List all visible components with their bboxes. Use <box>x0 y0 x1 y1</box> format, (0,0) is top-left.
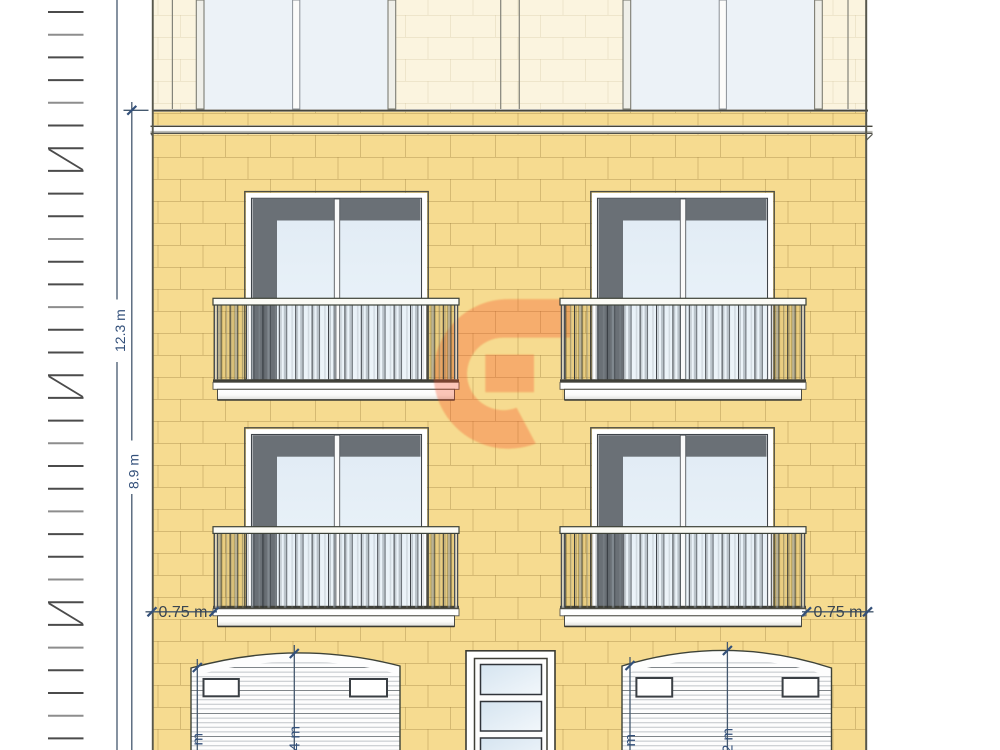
svg-text:2 m: 2 m <box>189 733 206 750</box>
svg-text:0.75 m: 0.75 m <box>814 604 863 621</box>
svg-text:2 m: 2 m <box>622 734 639 750</box>
svg-text:12.3 m: 12.3 m <box>112 309 128 352</box>
svg-text:2 m: 2 m <box>719 728 736 750</box>
svg-text:4 m: 4 m <box>286 726 303 750</box>
svg-text:8.9 m: 8.9 m <box>125 454 141 489</box>
svg-text:0.75 m: 0.75 m <box>159 604 208 621</box>
